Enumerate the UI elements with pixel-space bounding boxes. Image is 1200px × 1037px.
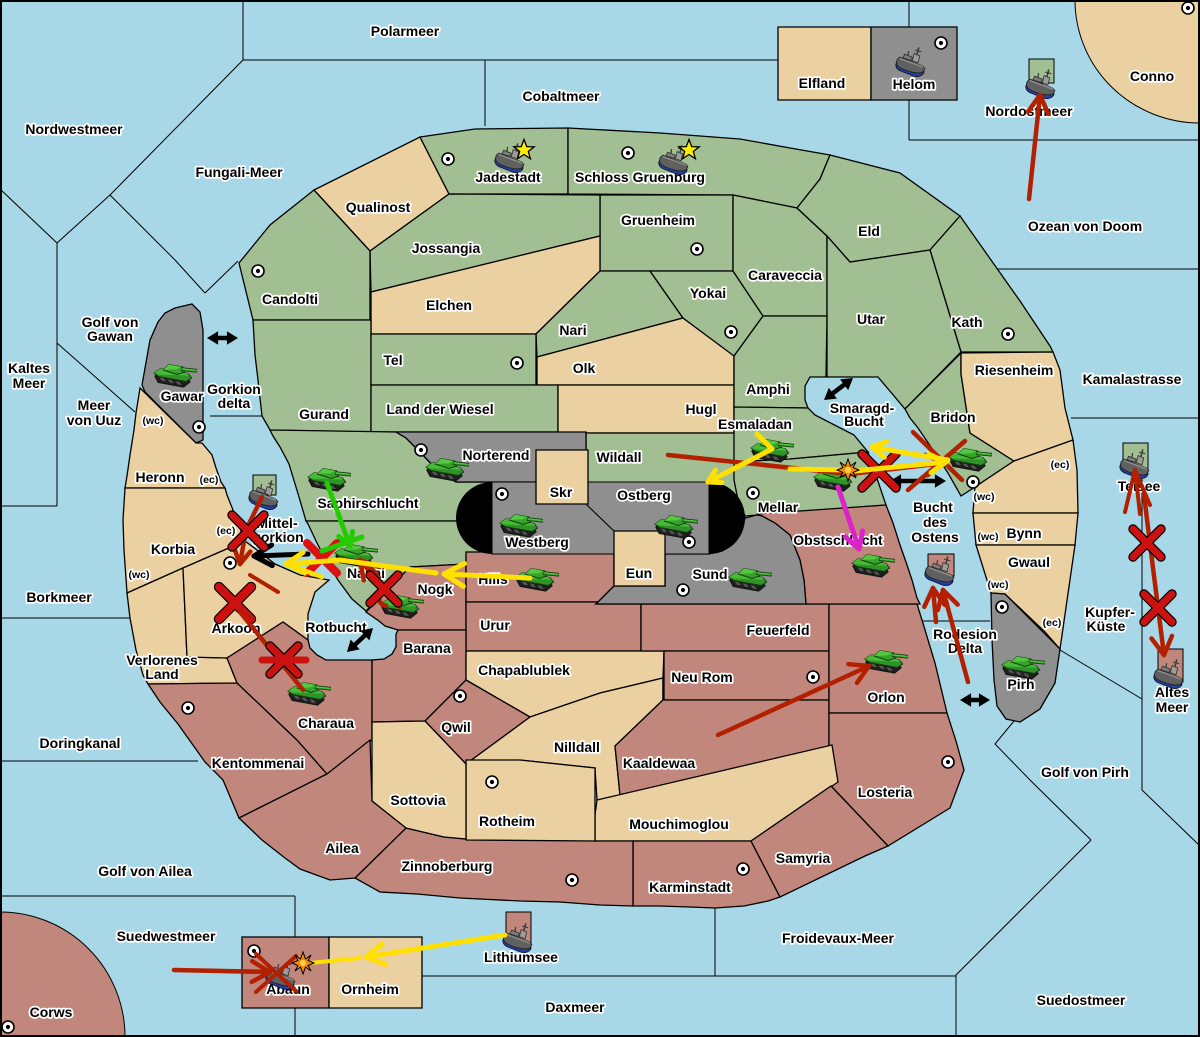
svg-text:Karminstadt: Karminstadt <box>649 879 731 895</box>
svg-text:Candolti: Candolti <box>262 291 318 307</box>
svg-text:Charaua: Charaua <box>298 715 354 731</box>
svg-text:Losteria: Losteria <box>858 784 913 800</box>
svg-text:Ailea: Ailea <box>325 840 359 856</box>
svg-text:Meer: Meer <box>1156 699 1189 715</box>
svg-text:Corws: Corws <box>30 1004 73 1020</box>
svg-text:Conno: Conno <box>1130 68 1174 84</box>
svg-text:Kentommenai: Kentommenai <box>212 755 305 771</box>
svg-text:Fungali-Meer: Fungali-Meer <box>195 164 283 180</box>
svg-text:Golf von Ailea: Golf von Ailea <box>98 863 192 879</box>
svg-text:Borkmeer: Borkmeer <box>26 589 92 605</box>
svg-text:Gurand: Gurand <box>299 406 349 422</box>
svg-text:(ec): (ec) <box>217 525 236 537</box>
svg-text:Land der Wiesel: Land der Wiesel <box>386 401 493 417</box>
svg-text:Nogk: Nogk <box>418 581 453 597</box>
svg-text:des: des <box>923 514 947 530</box>
svg-text:Nari: Nari <box>559 322 586 338</box>
svg-text:Cobaltmeer: Cobaltmeer <box>522 88 600 104</box>
svg-text:Eun: Eun <box>626 565 652 581</box>
svg-text:Ostens: Ostens <box>911 529 959 545</box>
svg-text:Chapablublek: Chapablublek <box>478 662 570 678</box>
svg-text:Delta: Delta <box>948 640 982 656</box>
svg-text:Norterend: Norterend <box>463 447 530 463</box>
svg-text:Skr: Skr <box>550 484 573 500</box>
svg-text:Elfland: Elfland <box>799 75 846 91</box>
svg-text:delta: delta <box>218 395 251 411</box>
svg-text:Qwil: Qwil <box>441 719 471 735</box>
svg-text:Zinnoberburg: Zinnoberburg <box>402 858 493 874</box>
svg-text:Nordwestmeer: Nordwestmeer <box>25 121 123 137</box>
svg-text:Rotheim: Rotheim <box>479 813 535 829</box>
svg-text:Wildall: Wildall <box>597 449 642 465</box>
svg-text:Amphi: Amphi <box>746 381 790 397</box>
svg-text:Jossangia: Jossangia <box>412 240 481 256</box>
svg-text:Esmaladan: Esmaladan <box>718 416 792 432</box>
svg-text:Westberg: Westberg <box>505 534 569 550</box>
svg-text:Eld: Eld <box>858 223 880 239</box>
svg-text:Bridon: Bridon <box>930 409 975 425</box>
svg-text:Land: Land <box>145 666 178 682</box>
svg-text:Nilldall: Nilldall <box>554 739 600 755</box>
svg-text:Kaltes: Kaltes <box>8 360 50 376</box>
svg-text:Bucht: Bucht <box>844 413 884 429</box>
svg-text:Küste: Küste <box>1087 618 1126 634</box>
svg-text:(wc): (wc) <box>129 569 150 581</box>
svg-text:Elchen: Elchen <box>426 297 472 313</box>
svg-text:Suedwestmeer: Suedwestmeer <box>117 928 216 944</box>
svg-text:Mellar: Mellar <box>758 499 799 515</box>
svg-text:Meer: Meer <box>13 375 46 391</box>
svg-text:(wc): (wc) <box>143 415 164 427</box>
svg-text:Hugl: Hugl <box>685 401 716 417</box>
svg-text:Kamalastrasse: Kamalastrasse <box>1083 371 1182 387</box>
svg-text:von Uuz: von Uuz <box>67 412 121 428</box>
svg-text:Heronn: Heronn <box>136 469 185 485</box>
svg-text:Urur: Urur <box>480 617 510 633</box>
svg-text:Riesenheim: Riesenheim <box>975 362 1054 378</box>
svg-text:(wc): (wc) <box>988 579 1009 591</box>
svg-text:Ozean von Doom: Ozean von Doom <box>1028 218 1142 234</box>
svg-text:Utar: Utar <box>857 311 886 327</box>
svg-text:Bynn: Bynn <box>1007 525 1042 541</box>
svg-text:Orlon: Orlon <box>867 689 904 705</box>
svg-text:Sottovia: Sottovia <box>390 792 445 808</box>
svg-text:Helom: Helom <box>893 76 936 92</box>
svg-text:(ec): (ec) <box>1051 459 1070 471</box>
svg-text:Ornheim: Ornheim <box>341 981 399 997</box>
svg-text:Meer: Meer <box>78 397 111 413</box>
svg-text:Olk: Olk <box>573 360 596 376</box>
svg-text:Gawar: Gawar <box>161 388 204 404</box>
svg-text:Neu Rom: Neu Rom <box>671 669 732 685</box>
svg-text:Daxmeer: Daxmeer <box>545 999 605 1015</box>
svg-text:Mouchimoglou: Mouchimoglou <box>629 816 729 832</box>
svg-text:Ostberg: Ostberg <box>617 487 671 503</box>
svg-text:Caraveccia: Caraveccia <box>748 267 822 283</box>
svg-text:Gwaul: Gwaul <box>1008 554 1050 570</box>
svg-text:Feuerfeld: Feuerfeld <box>746 622 809 638</box>
svg-text:Kath: Kath <box>951 314 982 330</box>
svg-text:Rotbucht: Rotbucht <box>305 619 367 635</box>
svg-text:Doringkanal: Doringkanal <box>40 735 121 751</box>
svg-text:Qualinost: Qualinost <box>346 199 411 215</box>
svg-text:Bucht: Bucht <box>913 499 953 515</box>
svg-text:Samyria: Samyria <box>776 850 831 866</box>
svg-text:(ec): (ec) <box>200 474 219 486</box>
svg-text:Sund: Sund <box>693 566 728 582</box>
svg-text:Golf von Pirh: Golf von Pirh <box>1041 764 1129 780</box>
svg-text:Froidevaux-Meer: Froidevaux-Meer <box>782 930 895 946</box>
svg-text:Tel: Tel <box>383 352 402 368</box>
svg-text:Suedostmeer: Suedostmeer <box>1037 992 1126 1008</box>
svg-text:(wc): (wc) <box>978 531 999 543</box>
svg-text:Gruenheim: Gruenheim <box>621 212 695 228</box>
svg-text:(wc): (wc) <box>974 491 995 503</box>
svg-text:Obstschlucht: Obstschlucht <box>793 532 883 548</box>
svg-text:Kaaldewaa: Kaaldewaa <box>623 755 696 771</box>
svg-text:Polarmeer: Polarmeer <box>371 23 440 39</box>
svg-text:Jadestadt: Jadestadt <box>475 169 541 185</box>
svg-text:(ec): (ec) <box>1043 617 1062 629</box>
svg-text:Yokai: Yokai <box>690 285 726 301</box>
svg-text:Korbia: Korbia <box>151 541 196 557</box>
svg-text:Gawan: Gawan <box>87 328 133 344</box>
svg-text:Barana: Barana <box>403 640 451 656</box>
